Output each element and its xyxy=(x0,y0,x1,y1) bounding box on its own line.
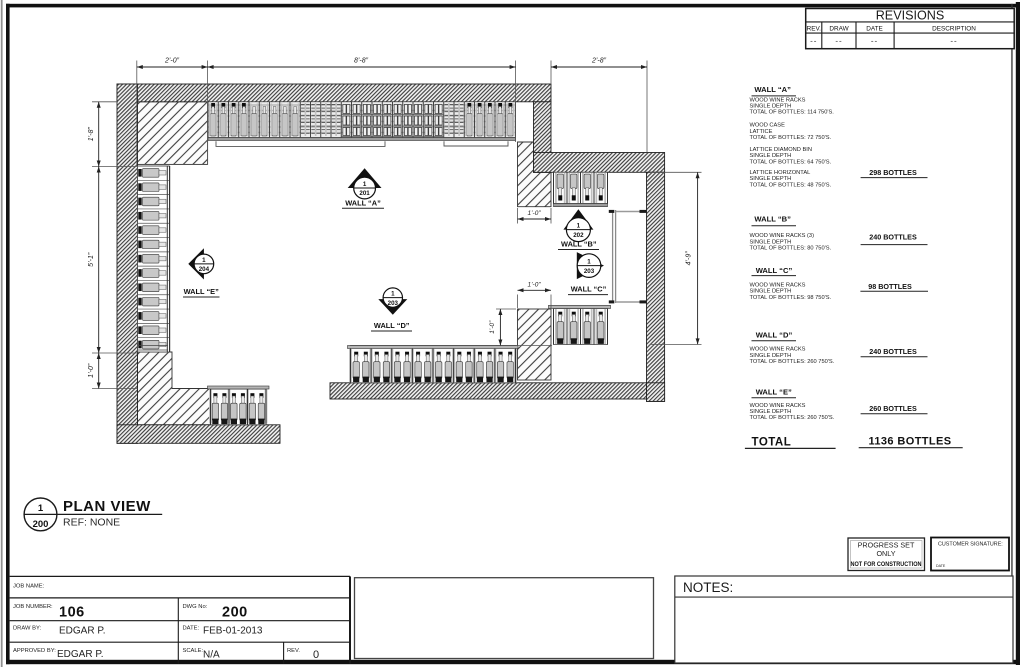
svg-text:TOTAL OF BOTTLES: 260 750'S.: TOTAL OF BOTTLES: 260 750'S. xyxy=(750,359,835,365)
svg-text:WOOD WINE RACKS: WOOD WINE RACKS xyxy=(750,97,806,103)
svg-text:SCALE:: SCALE: xyxy=(183,648,204,654)
svg-text:REVISIONS: REVISIONS xyxy=(876,8,945,22)
svg-text:NOTES:: NOTES: xyxy=(683,580,733,595)
svg-text:203: 203 xyxy=(388,300,399,307)
svg-text:4’-9”: 4’-9” xyxy=(686,251,693,266)
svg-text:SINGLE DEPTH: SINGLE DEPTH xyxy=(750,153,792,159)
svg-text:TOTAL OF BOTTLES: 72 750'S.: TOTAL OF BOTTLES: 72 750'S. xyxy=(750,135,832,141)
svg-text:WALL “D”: WALL “D” xyxy=(756,330,793,339)
svg-text:EDGAR P.: EDGAR P. xyxy=(59,626,106,637)
svg-text:TOTAL OF BOTTLES: 114 750'S.: TOTAL OF BOTTLES: 114 750'S. xyxy=(750,110,835,116)
svg-text:DRAW BY:: DRAW BY: xyxy=(13,626,42,632)
svg-text:1’-0”: 1’-0” xyxy=(527,210,541,217)
svg-text:WALL “E”: WALL “E” xyxy=(184,287,219,296)
svg-text:203: 203 xyxy=(584,268,595,275)
svg-text:DWG No:: DWG No: xyxy=(183,604,208,610)
svg-text:N/A: N/A xyxy=(203,650,220,661)
svg-text:--: -- xyxy=(835,37,842,46)
svg-text:WALL “C”: WALL “C” xyxy=(756,266,793,275)
svg-text:DATE: DATE xyxy=(866,26,883,33)
svg-text:8’-8”: 8’-8” xyxy=(354,58,369,65)
svg-text:CUSTOMER SIGNATURE:: CUSTOMER SIGNATURE: xyxy=(938,542,1003,548)
svg-text:1136 BOTTLES: 1136 BOTTLES xyxy=(868,436,951,448)
svg-text:200: 200 xyxy=(33,519,49,530)
svg-text:ONLY: ONLY xyxy=(876,549,895,558)
svg-text:TOTAL OF BOTTLES: 64 750'S.: TOTAL OF BOTTLES: 64 750'S. xyxy=(750,159,832,165)
svg-text:DRAW: DRAW xyxy=(829,26,849,33)
svg-text:REV.: REV. xyxy=(287,648,300,654)
svg-text:1: 1 xyxy=(363,181,367,188)
svg-text:SINGLE DEPTH: SINGLE DEPTH xyxy=(750,104,792,110)
svg-text:WOOD WINE RACKS: WOOD WINE RACKS xyxy=(750,347,806,353)
svg-text:106: 106 xyxy=(59,605,85,621)
svg-text:WALL “E”: WALL “E” xyxy=(756,388,792,397)
svg-text:1: 1 xyxy=(202,257,206,264)
svg-text:1’-0”: 1’-0” xyxy=(88,363,95,378)
svg-text:TOTAL OF BOTTLES: 260 750'S.: TOTAL OF BOTTLES: 260 750'S. xyxy=(750,415,835,421)
svg-text:REV.: REV. xyxy=(807,26,822,33)
svg-text:0: 0 xyxy=(313,649,319,661)
svg-text:TOTAL: TOTAL xyxy=(752,436,792,448)
svg-text:1’-0”: 1’-0” xyxy=(527,282,541,289)
svg-text:JOB NUMBER:: JOB NUMBER: xyxy=(13,604,53,610)
svg-text:WALL “A”: WALL “A” xyxy=(754,85,791,94)
svg-text:SINGLE DEPTH: SINGLE DEPTH xyxy=(750,289,792,295)
svg-text:2’-8”: 2’-8” xyxy=(591,58,607,65)
svg-text:98 BOTTLES: 98 BOTTLES xyxy=(868,282,912,291)
svg-text:PLAN VIEW: PLAN VIEW xyxy=(63,498,151,515)
svg-text:--: -- xyxy=(810,37,817,46)
svg-text:WOOD WINE RACKS: WOOD WINE RACKS xyxy=(750,282,806,288)
svg-text:WALL “A”: WALL “A” xyxy=(345,199,381,208)
svg-text:1’-0”: 1’-0” xyxy=(489,320,496,334)
svg-text:WALL “B”: WALL “B” xyxy=(754,214,791,223)
svg-text:DESCRIPTION: DESCRIPTION xyxy=(932,26,976,33)
svg-text:JOB NAME:: JOB NAME: xyxy=(13,584,45,590)
svg-text:WALL “D”: WALL “D” xyxy=(374,321,410,330)
svg-text:TOTAL OF BOTTLES: 98 750'S.: TOTAL OF BOTTLES: 98 750'S. xyxy=(750,295,832,301)
svg-text:1: 1 xyxy=(577,223,581,230)
svg-text:NOT FOR CONSTRUCTION: NOT FOR CONSTRUCTION xyxy=(851,561,922,568)
svg-text:WOOD WINE RACKS (3): WOOD WINE RACKS (3) xyxy=(750,233,815,239)
svg-text:--: -- xyxy=(871,37,878,46)
svg-text:WALL “C”: WALL “C” xyxy=(571,285,607,294)
svg-text:1’-8”: 1’-8” xyxy=(88,127,95,142)
svg-text:240 BOTTLES: 240 BOTTLES xyxy=(869,232,917,241)
svg-text:1: 1 xyxy=(587,259,591,266)
svg-text:TOTAL OF BOTTLES: 48 750'S.: TOTAL OF BOTTLES: 48 750'S. xyxy=(750,182,832,188)
svg-text:WALL “B”: WALL “B” xyxy=(561,240,597,249)
svg-text:SINGLE DEPTH: SINGLE DEPTH xyxy=(750,176,792,182)
svg-text:5’-1”: 5’-1” xyxy=(88,252,95,267)
svg-text:202: 202 xyxy=(573,232,584,239)
svg-text:WOOD WINE RACKS: WOOD WINE RACKS xyxy=(750,403,806,409)
svg-text:201: 201 xyxy=(359,190,370,197)
svg-text:LATTICE HORIZONTAL: LATTICE HORIZONTAL xyxy=(750,170,811,176)
svg-text:FEB-01-2013: FEB-01-2013 xyxy=(203,626,263,637)
svg-text:DATE: DATE xyxy=(936,564,946,568)
svg-text:DATE:: DATE: xyxy=(183,626,200,632)
svg-text:LATTICE DIAMOND BIN: LATTICE DIAMOND BIN xyxy=(750,147,812,153)
svg-text:2’-0”: 2’-0” xyxy=(164,58,180,65)
svg-text:204: 204 xyxy=(199,266,210,273)
svg-text:1: 1 xyxy=(38,503,44,514)
svg-text:LATTICE: LATTICE xyxy=(750,129,773,135)
svg-text:298 BOTTLES: 298 BOTTLES xyxy=(869,168,917,177)
svg-text:1: 1 xyxy=(391,291,395,298)
svg-text:APPROVED BY:: APPROVED BY: xyxy=(13,648,56,654)
svg-text:SINGLE DEPTH: SINGLE DEPTH xyxy=(750,239,792,245)
svg-text:200: 200 xyxy=(222,605,248,621)
svg-text:EDGAR P.: EDGAR P. xyxy=(57,649,104,660)
svg-text:260 BOTTLES: 260 BOTTLES xyxy=(869,404,917,413)
svg-text:--: -- xyxy=(950,37,957,46)
svg-text:240 BOTTLES: 240 BOTTLES xyxy=(869,347,917,356)
svg-text:TOTAL OF BOTTLES: 80 750'S.: TOTAL OF BOTTLES: 80 750'S. xyxy=(750,246,832,252)
svg-text:SINGLE DEPTH: SINGLE DEPTH xyxy=(750,353,792,359)
svg-text:REF: NONE: REF: NONE xyxy=(63,517,120,529)
svg-text:SINGLE DEPTH: SINGLE DEPTH xyxy=(750,409,792,415)
svg-text:WOOD CASE: WOOD CASE xyxy=(750,123,786,129)
